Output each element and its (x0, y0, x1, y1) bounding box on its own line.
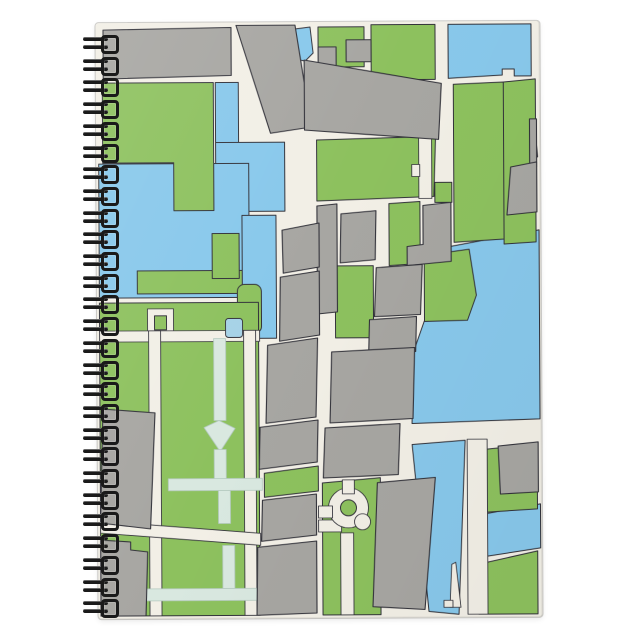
park-path (218, 490, 230, 523)
spiral-ring (83, 123, 121, 142)
street (419, 137, 432, 198)
park-path (214, 338, 226, 420)
ring-loop (101, 57, 119, 76)
ring-loop (101, 469, 119, 488)
canal-upper (215, 82, 238, 150)
ring-loop (101, 144, 119, 163)
spiral-ring (83, 58, 121, 77)
building-block (374, 264, 422, 316)
building-block (498, 442, 538, 494)
notebook-cover (95, 21, 542, 619)
green-finger (212, 233, 239, 278)
park-path (223, 545, 235, 588)
street (244, 330, 257, 615)
ring-loop (101, 187, 119, 206)
spiral-ring (83, 405, 121, 424)
spiral-ring (83, 275, 121, 294)
ring-loop (101, 295, 119, 314)
street (342, 480, 354, 494)
roundabout-island (340, 500, 356, 516)
street (467, 439, 488, 614)
building-block (317, 204, 338, 314)
spiral-ring (83, 340, 121, 359)
spiral-ring (83, 600, 121, 619)
building-block (529, 119, 536, 167)
spiral-ring (83, 362, 121, 381)
building-block (346, 40, 371, 62)
building-block (261, 494, 316, 541)
ring-loop (101, 35, 119, 54)
spiral-ring (83, 448, 121, 467)
map-cover-art (95, 21, 542, 619)
park-block (453, 82, 504, 242)
spiral-ring (83, 557, 121, 576)
ring-loop (101, 78, 119, 97)
ring-loop (101, 447, 119, 466)
ring-loop (101, 578, 119, 597)
ring-loop (101, 339, 119, 358)
product-photo-background (0, 0, 644, 644)
ring-loop (101, 556, 119, 575)
building-block (323, 424, 400, 478)
ring-loop (101, 491, 119, 510)
spiral-ring (83, 145, 121, 164)
street (318, 506, 332, 518)
spiral-ring (83, 253, 121, 272)
building-block (282, 223, 319, 273)
roundabout-hook (355, 514, 371, 530)
ring-loop (101, 230, 119, 249)
spiral-ring (83, 36, 121, 55)
spiral-ring (83, 296, 121, 315)
building-block (507, 162, 537, 215)
green-sliver (264, 466, 318, 497)
ring-loop (101, 382, 119, 401)
street (341, 533, 354, 615)
ring-loop (101, 512, 119, 531)
building-block (266, 338, 318, 423)
spiral-ring (83, 579, 121, 598)
spiral-ring (83, 210, 121, 229)
ring-loop (101, 252, 119, 271)
spiral-ring (83, 231, 121, 250)
ring-loop (101, 317, 119, 336)
spiral-ring (83, 166, 121, 185)
park-path (168, 478, 262, 490)
street-loop-center (154, 316, 166, 330)
ring-loop (101, 599, 119, 618)
spiral-ring (83, 383, 121, 402)
park-block (435, 182, 452, 202)
spiral-ring (83, 79, 121, 98)
park-path (141, 588, 257, 601)
building-block (279, 271, 319, 341)
building-block (257, 541, 317, 615)
ring-loop (101, 122, 119, 141)
pond (225, 318, 242, 337)
spiral-ring (83, 101, 121, 120)
spiral-ring (83, 492, 121, 511)
spiral-ring (83, 188, 121, 207)
ring-loop (101, 165, 119, 184)
ring-loop (101, 100, 119, 119)
ring-loop (101, 534, 119, 553)
spiral-ring (83, 470, 121, 489)
building-tall-bottom (372, 477, 436, 609)
spiral-ring (83, 318, 121, 337)
park-block (335, 266, 373, 338)
ring-loop (101, 426, 119, 445)
building-block (330, 347, 415, 422)
spiral-ring (83, 535, 121, 554)
building-block (340, 211, 376, 263)
street (412, 164, 420, 176)
ring-loop (101, 274, 119, 293)
pier-base (444, 600, 453, 607)
ring-loop (101, 404, 119, 423)
building-block (259, 420, 318, 469)
park-block (371, 24, 435, 79)
water-basin-topright (448, 24, 531, 78)
spiral-binding (0, 0, 140, 644)
spiral-ring (83, 513, 121, 532)
ring-loop (101, 361, 119, 380)
spiral-ring (83, 427, 121, 446)
ring-loop (101, 209, 119, 228)
